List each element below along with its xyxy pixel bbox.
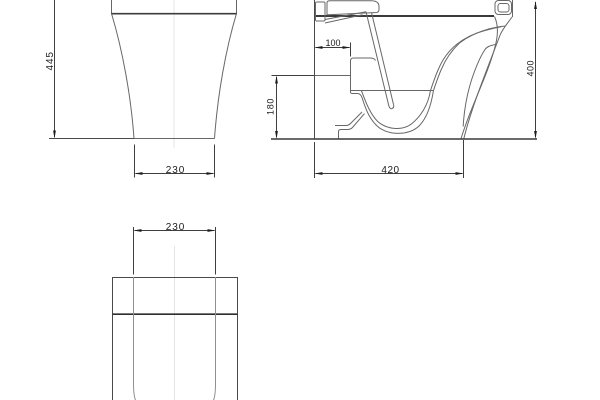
svg-text:100: 100 — [325, 38, 340, 48]
svg-text:400: 400 — [526, 60, 536, 77]
svg-text:420: 420 — [381, 165, 399, 176]
svg-text:180: 180 — [266, 98, 276, 115]
svg-text:445: 445 — [45, 51, 56, 70]
svg-text:230: 230 — [166, 222, 185, 233]
svg-text:230: 230 — [166, 165, 185, 176]
